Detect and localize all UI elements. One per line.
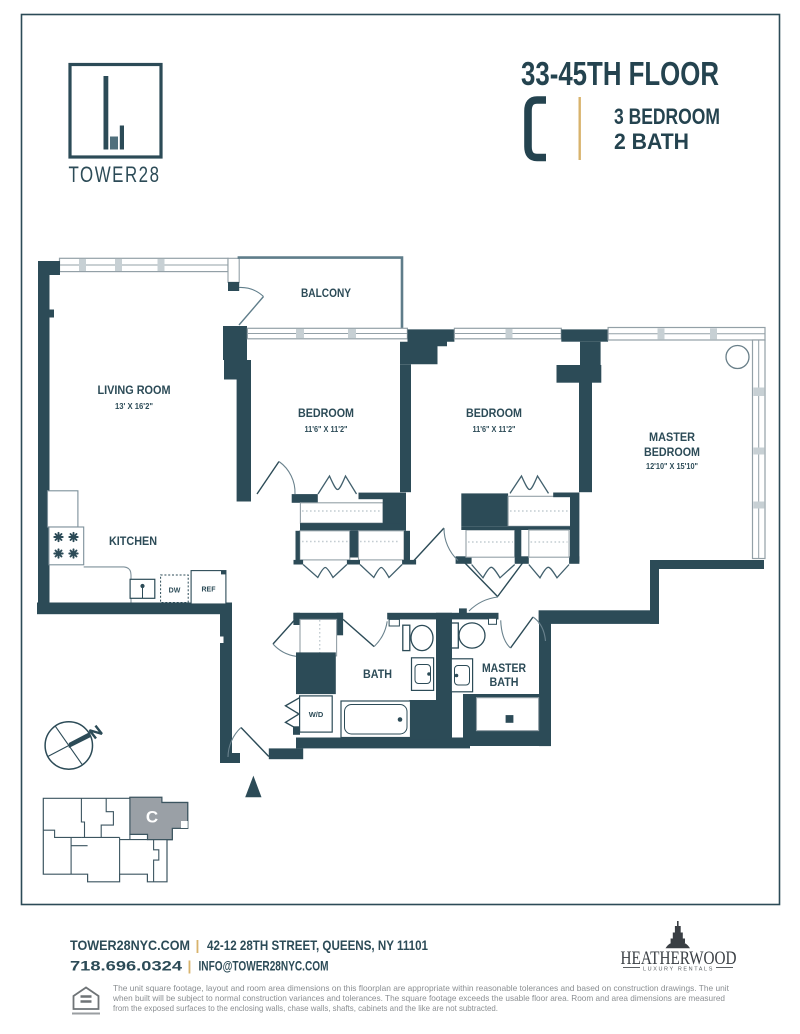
svg-text:BEDROOM: BEDROOM (466, 408, 522, 420)
svg-text:33-45TH FLOOR: 33-45TH FLOOR (521, 55, 719, 92)
svg-text:DW: DW (169, 588, 181, 595)
svg-text:11'6" X 11'2": 11'6" X 11'2" (473, 425, 516, 434)
svg-text:from the exposed surfaces to t: from the exposed surfaces to the enclosi… (113, 1004, 498, 1013)
svg-text:BATH: BATH (363, 669, 392, 681)
svg-text:LIVING ROOM: LIVING ROOM (98, 385, 171, 397)
svg-text:BALCONY: BALCONY (301, 288, 351, 300)
svg-text:KITCHEN: KITCHEN (109, 536, 157, 548)
svg-text:when built will be subject to: when built will be subject to normal con… (112, 994, 725, 1003)
svg-text:12'10" X 15'10": 12'10" X 15'10" (646, 462, 698, 471)
svg-text:BEDROOM: BEDROOM (298, 408, 354, 420)
svg-text:BATH: BATH (490, 677, 519, 689)
svg-text:INFO@TOWER28NYC.COM: INFO@TOWER28NYC.COM (199, 958, 329, 974)
svg-text:13' X 16'2": 13' X 16'2" (115, 402, 153, 411)
svg-text:MASTER: MASTER (482, 663, 527, 675)
svg-text:LUXURY RENTALS: LUXURY RENTALS (643, 967, 714, 973)
svg-text:The unit square footage, layou: The unit square footage, layout and room… (113, 984, 730, 993)
svg-text:REF: REF (202, 587, 217, 594)
svg-text:|: | (196, 937, 200, 953)
svg-text:2 BATH: 2 BATH (614, 129, 689, 154)
svg-text:TOWER28: TOWER28 (69, 162, 161, 187)
svg-text:42-12 28TH STREET, QUEENS, NY: 42-12 28TH STREET, QUEENS, NY 11101 (207, 937, 428, 953)
svg-text:11'6" X 11'2": 11'6" X 11'2" (305, 425, 348, 434)
svg-text:718.696.0324: 718.696.0324 (70, 958, 182, 974)
svg-text:C: C (146, 808, 158, 827)
svg-text:TOWER28NYC.COM: TOWER28NYC.COM (70, 937, 190, 953)
svg-text:BEDROOM: BEDROOM (644, 447, 700, 459)
svg-text:W/D: W/D (309, 710, 324, 719)
svg-text:3 BEDROOM: 3 BEDROOM (614, 104, 720, 129)
svg-text:MASTER: MASTER (649, 432, 696, 444)
svg-text:|: | (188, 958, 192, 974)
